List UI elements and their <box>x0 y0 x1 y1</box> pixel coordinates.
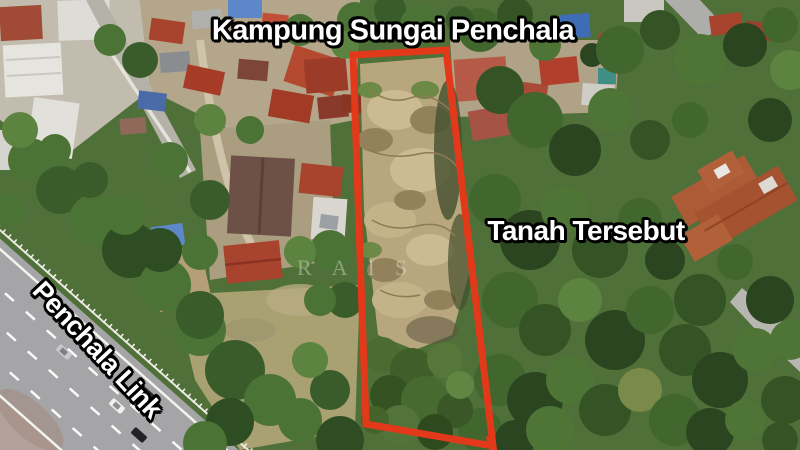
subject-land-label: Tanah Tersebut <box>487 215 684 247</box>
watermark-text: RAIS <box>297 255 427 281</box>
village-label: Kampung Sungai Penchala <box>212 15 574 48</box>
aerial-photo: Kampung Sungai Penchala Tanah Tersebut P… <box>0 0 800 450</box>
